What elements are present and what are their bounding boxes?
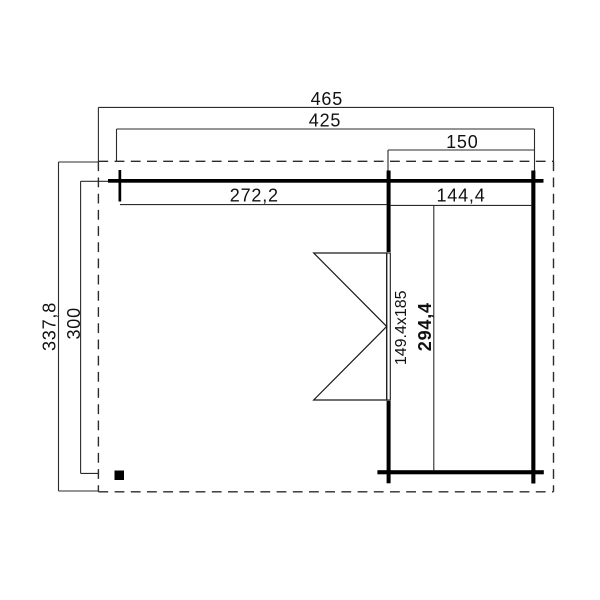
svg-text:144,4: 144,4 — [436, 186, 485, 206]
svg-text:149.4x185: 149.4x185 — [393, 290, 410, 365]
svg-text:337,8: 337,8 — [40, 302, 60, 351]
svg-text:465: 465 — [311, 89, 343, 109]
svg-text:300: 300 — [64, 307, 84, 339]
svg-text:150: 150 — [446, 132, 478, 152]
svg-text:294,4: 294,4 — [415, 302, 435, 351]
svg-text:425: 425 — [309, 111, 341, 131]
svg-text:272,2: 272,2 — [230, 185, 279, 205]
